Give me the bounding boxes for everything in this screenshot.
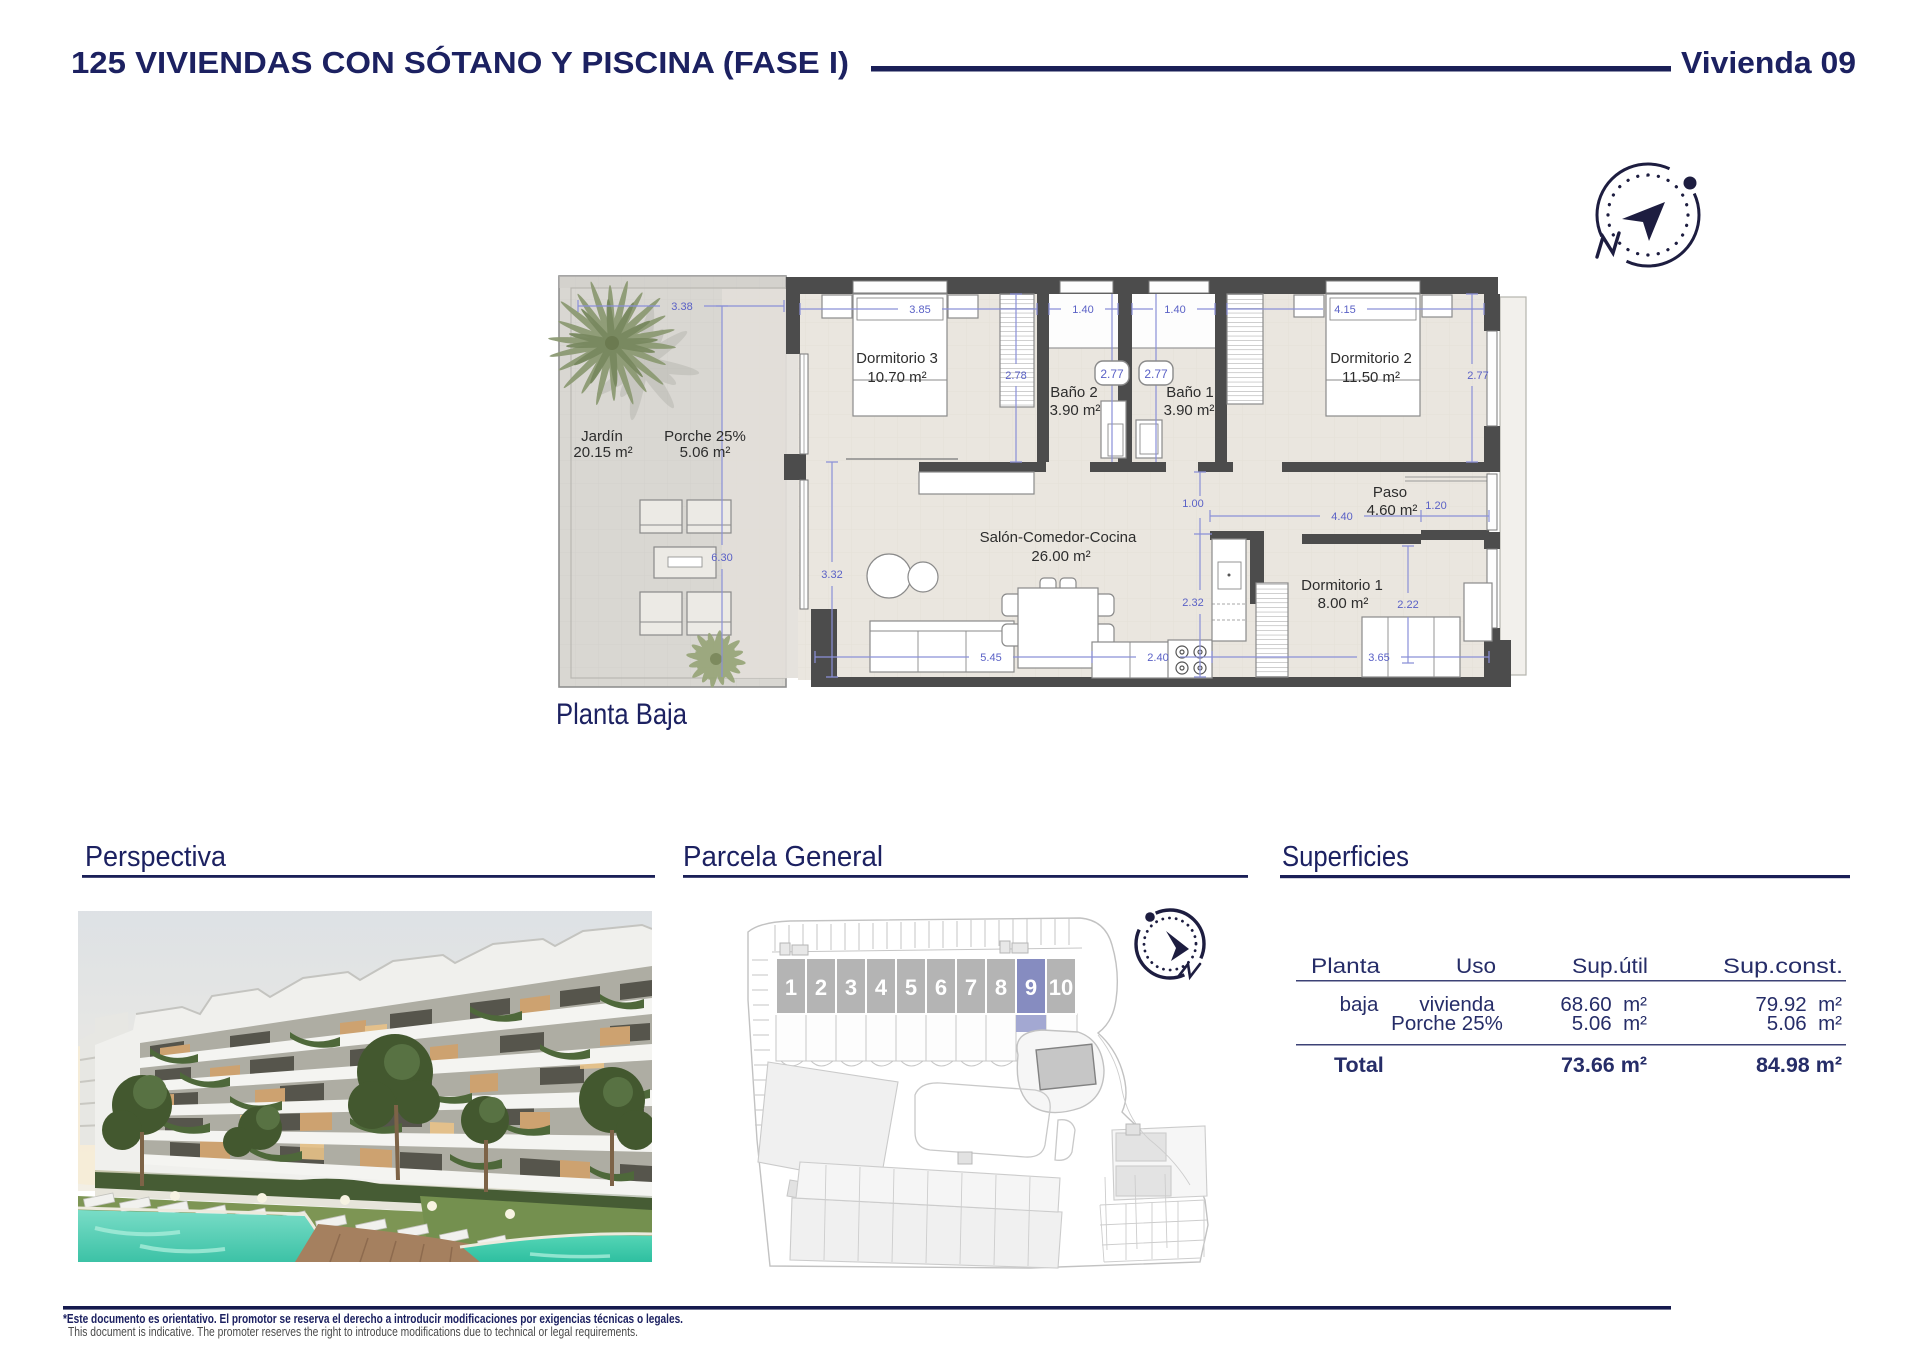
svg-text:3.90 m²: 3.90 m² [1050,402,1101,419]
svg-text:Planta Baja: Planta Baja [556,698,687,731]
svg-text:2.22: 2.22 [1397,599,1418,611]
svg-text:3.32: 3.32 [821,569,842,581]
svg-text:73.66 m²: 73.66 m² [1561,1053,1647,1077]
svg-text:6: 6 [935,975,947,1000]
svg-text:2.78: 2.78 [1005,370,1026,382]
svg-text:84.98 m²: 84.98 m² [1756,1053,1842,1077]
svg-text:10.70 m²: 10.70 m² [867,369,926,386]
svg-text:11.50 m²: 11.50 m² [1342,369,1400,386]
svg-text:Planta: Planta [1311,954,1380,978]
svg-text:Baño 2: Baño 2 [1050,384,1098,401]
svg-text:2.77: 2.77 [1144,367,1168,381]
svg-text:1.40: 1.40 [1072,304,1093,316]
svg-text:8: 8 [995,975,1007,1000]
svg-text:This document is indicative. T: This document is indicative. The promote… [68,1325,638,1339]
svg-text:Dormitorio 2: Dormitorio 2 [1330,350,1412,367]
svg-text:Paso: Paso [1373,484,1407,501]
svg-text:Perspectiva: Perspectiva [85,841,227,873]
svg-text:1: 1 [785,975,797,1000]
svg-text:5.45: 5.45 [980,652,1001,664]
svg-text:Salón-Comedor-Cocina: Salón-Comedor-Cocina [980,529,1137,546]
svg-text:*Este documento es orientativo: *Este documento es orientativo. El promo… [63,1312,683,1326]
svg-text:4.60 m²: 4.60 m² [1367,502,1418,519]
svg-text:baja: baja [1340,993,1379,1016]
svg-text:Jardín: Jardín [581,428,623,445]
svg-text:5.06 m²: 5.06 m² [680,444,731,461]
svg-text:3.65: 3.65 [1368,652,1389,664]
svg-text:Vivienda 09: Vivienda 09 [1681,45,1856,80]
svg-text:3.85: 3.85 [909,304,930,316]
svg-text:5: 5 [905,975,917,1000]
svg-text:Parcela General: Parcela General [683,841,883,873]
svg-text:3.90 m²: 3.90 m² [1164,402,1215,419]
svg-text:20.15 m²: 20.15 m² [573,444,632,461]
svg-text:4.40: 4.40 [1331,511,1352,523]
svg-text:2.77: 2.77 [1100,367,1124,381]
svg-text:2: 2 [815,975,827,1000]
svg-text:1.40: 1.40 [1164,304,1185,316]
svg-text:9: 9 [1025,975,1037,1000]
svg-text:Dormitorio 3: Dormitorio 3 [856,350,938,367]
svg-text:5.06 m²: 5.06 m² [1572,1012,1647,1035]
svg-text:2.32: 2.32 [1182,597,1203,609]
svg-text:3.38: 3.38 [671,301,692,313]
svg-text:4: 4 [875,975,888,1000]
svg-text:3: 3 [845,975,857,1000]
svg-text:7: 7 [965,975,977,1000]
svg-text:Dormitorio 1: Dormitorio 1 [1301,577,1383,594]
svg-text:26.00 m²: 26.00 m² [1031,548,1090,565]
svg-text:2.77: 2.77 [1467,370,1488,382]
svg-text:Total: Total [1334,1053,1384,1077]
svg-text:Sup.const.: Sup.const. [1723,954,1843,978]
svg-text:2.40: 2.40 [1147,652,1168,664]
svg-text:1.00: 1.00 [1182,498,1203,510]
svg-text:Uso: Uso [1456,954,1496,978]
svg-text:6.30: 6.30 [711,552,732,564]
svg-text:4.15: 4.15 [1334,304,1355,316]
svg-text:Baño 1: Baño 1 [1166,384,1214,401]
svg-text:8.00 m²: 8.00 m² [1318,595,1369,612]
svg-text:1.20: 1.20 [1425,500,1446,512]
svg-text:Superficies: Superficies [1282,841,1409,873]
svg-text:Porche 25%: Porche 25% [664,428,746,445]
svg-text:Porche 25%: Porche 25% [1391,1012,1503,1035]
svg-text:125 VIVIENDAS CON SÓTANO Y PIS: 125 VIVIENDAS CON SÓTANO Y PISCINA (FASE… [71,44,849,80]
svg-text:Sup.útil: Sup.útil [1572,954,1648,978]
svg-text:10: 10 [1049,975,1073,1000]
svg-text:5.06 m²: 5.06 m² [1767,1012,1842,1035]
